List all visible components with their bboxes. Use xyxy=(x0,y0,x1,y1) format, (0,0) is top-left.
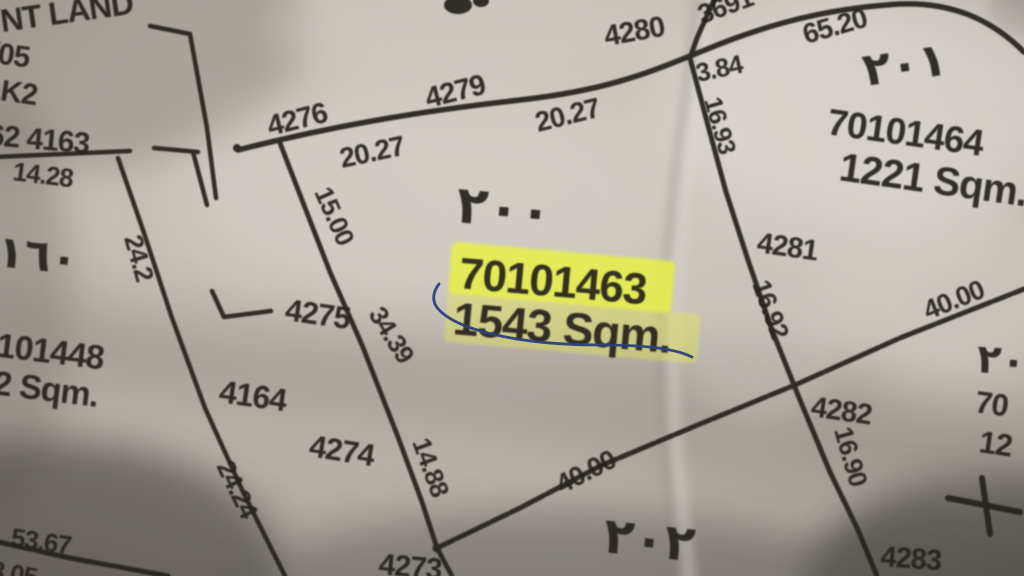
label-block-200: ٢٠٠ xyxy=(454,176,554,242)
survey-point-junction xyxy=(433,544,442,553)
label-parcel-4273: 4273 xyxy=(377,548,443,576)
label-ref-1k2: 1K2 xyxy=(0,72,39,112)
map-photo-root: NT LAND 0/05 1K2 4162 4163 14.28 ١٦٠ 701… xyxy=(0,0,1024,576)
survey-point-curve-start xyxy=(233,144,241,152)
label-edge-area-12: 12 xyxy=(977,424,1014,463)
cadastral-map-photo: NT LAND 0/05 1K2 4162 4163 14.28 ١٦٠ 701… xyxy=(0,0,1024,576)
label-block-202: ٢٠٢ xyxy=(601,507,698,572)
label-ref-905: 0/05 xyxy=(0,34,32,74)
label-parcel-4283: 4283 xyxy=(880,541,943,576)
label-edge-block-20: ٢٠ xyxy=(975,337,1024,384)
label-block-160: ١٦٠ xyxy=(0,227,80,284)
label-edge-parcel-70: 70 xyxy=(973,384,1010,423)
